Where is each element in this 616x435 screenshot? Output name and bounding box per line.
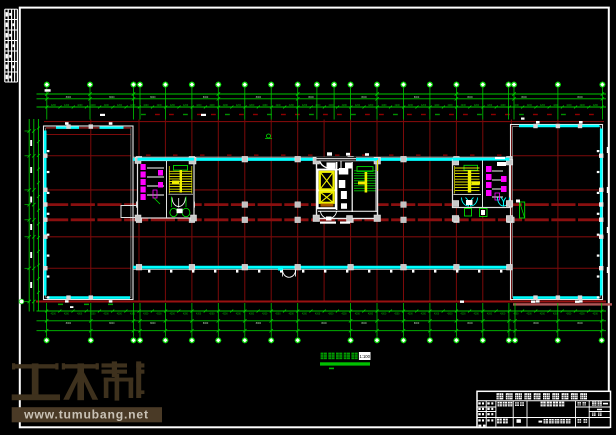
svg-text:4200: 4200 <box>64 313 70 315</box>
svg-text:4200: 4200 <box>593 313 599 315</box>
svg-text:4200: 4200 <box>368 313 374 315</box>
svg-text:4200: 4200 <box>130 313 136 315</box>
svg-text:4200: 4200 <box>580 105 586 107</box>
svg-text:4200: 4200 <box>196 105 202 107</box>
svg-text:4200: 4200 <box>315 105 321 107</box>
svg-text:4200: 4200 <box>368 105 374 107</box>
svg-text:4200: 4200 <box>579 313 585 315</box>
svg-text:4200: 4200 <box>64 105 70 107</box>
svg-text:8000: 8000 <box>308 96 314 99</box>
svg-text:4200: 4200 <box>262 105 268 107</box>
svg-text:4200: 4200 <box>143 313 149 315</box>
svg-text:4200: 4200 <box>566 313 572 315</box>
svg-text:4200: 4200 <box>553 313 559 315</box>
svg-text:4200: 4200 <box>104 105 110 107</box>
svg-text:4200: 4200 <box>302 313 308 315</box>
svg-text:8000: 8000 <box>150 96 156 99</box>
svg-text:4200: 4200 <box>500 313 506 315</box>
svg-text:8000: 8000 <box>321 322 327 325</box>
svg-text:4200: 4200 <box>394 313 400 315</box>
svg-text:4200: 4200 <box>514 105 520 107</box>
svg-text:4200: 4200 <box>104 313 110 315</box>
svg-text:4200: 4200 <box>170 313 176 315</box>
svg-text:4200: 4200 <box>447 105 453 107</box>
svg-text:4200: 4200 <box>355 313 361 315</box>
svg-text:8000: 8000 <box>533 322 539 325</box>
svg-text:4200: 4200 <box>341 313 347 315</box>
svg-text:4200: 4200 <box>408 105 414 107</box>
svg-text:1:100: 1:100 <box>359 354 370 359</box>
svg-text:4200: 4200 <box>156 313 162 315</box>
svg-text:8000: 8000 <box>109 322 115 325</box>
svg-text:4200: 4200 <box>434 313 440 315</box>
svg-text:4200: 4200 <box>487 105 493 107</box>
svg-text:4200: 4200 <box>513 313 519 315</box>
svg-text:4200: 4200 <box>381 105 387 107</box>
svg-text:4200: 4200 <box>500 105 506 107</box>
svg-text:8000: 8000 <box>256 96 262 99</box>
svg-text:8000: 8000 <box>150 322 156 325</box>
svg-text:4200: 4200 <box>130 105 136 107</box>
svg-text:8000: 8000 <box>577 96 583 99</box>
svg-text:8000: 8000 <box>361 322 367 325</box>
svg-text:4200: 4200 <box>236 105 242 107</box>
svg-text:4200: 4200 <box>421 105 427 107</box>
svg-text:4200: 4200 <box>328 313 334 315</box>
svg-text:4200: 4200 <box>302 105 308 107</box>
svg-text:8000: 8000 <box>66 322 72 325</box>
svg-text:8000: 8000 <box>66 96 72 99</box>
svg-text:4200: 4200 <box>342 105 348 107</box>
svg-text:4200: 4200 <box>223 105 229 107</box>
svg-text:4200: 4200 <box>117 313 123 315</box>
svg-text:4200: 4200 <box>395 105 401 107</box>
svg-text:4200: 4200 <box>447 313 453 315</box>
svg-text:4200: 4200 <box>460 313 466 315</box>
svg-text:4200: 4200 <box>77 313 83 315</box>
svg-text:4200: 4200 <box>540 313 546 315</box>
svg-text:4200: 4200 <box>143 105 149 107</box>
svg-text:4200: 4200 <box>275 313 281 315</box>
svg-text:4200: 4200 <box>328 105 334 107</box>
svg-text:4200: 4200 <box>236 313 242 315</box>
svg-text:8000: 8000 <box>361 96 367 99</box>
svg-text:4200: 4200 <box>289 313 295 315</box>
svg-text:4200: 4200 <box>408 313 414 315</box>
svg-text:4200: 4200 <box>474 313 480 315</box>
svg-text:8000: 8000 <box>467 322 473 325</box>
svg-text:8000: 8000 <box>467 96 473 99</box>
svg-text:4200: 4200 <box>527 313 533 315</box>
svg-text:4200: 4200 <box>527 105 533 107</box>
svg-text:4200: 4200 <box>51 313 57 315</box>
svg-text:4200: 4200 <box>90 313 96 315</box>
svg-text:8000: 8000 <box>256 322 262 325</box>
svg-text:4200: 4200 <box>276 105 282 107</box>
svg-text:4200: 4200 <box>421 313 427 315</box>
svg-text:4200: 4200 <box>566 105 572 107</box>
svg-text:8000: 8000 <box>203 322 209 325</box>
svg-text:4200: 4200 <box>117 105 123 107</box>
svg-text:4200: 4200 <box>51 105 57 107</box>
svg-text:8000: 8000 <box>203 96 209 99</box>
svg-text:4200: 4200 <box>289 105 295 107</box>
svg-text:4200: 4200 <box>381 313 387 315</box>
svg-text:4200: 4200 <box>474 105 480 107</box>
svg-text:4200: 4200 <box>77 105 83 107</box>
svg-text:www.tumubang.net: www.tumubang.net <box>23 408 149 422</box>
svg-text:4200: 4200 <box>593 105 599 107</box>
svg-text:8000: 8000 <box>109 96 115 99</box>
svg-text:4200: 4200 <box>540 105 546 107</box>
svg-text:8000: 8000 <box>414 322 420 325</box>
svg-text:4200: 4200 <box>262 313 268 315</box>
svg-text:4200: 4200 <box>209 105 215 107</box>
svg-text:4200: 4200 <box>553 105 559 107</box>
svg-text:4200: 4200 <box>183 105 189 107</box>
svg-text:4200: 4200 <box>209 313 215 315</box>
svg-text:4200: 4200 <box>434 105 440 107</box>
svg-text:8000: 8000 <box>521 96 527 99</box>
svg-text:4200: 4200 <box>355 105 361 107</box>
svg-text:4200: 4200 <box>249 105 255 107</box>
svg-text:4200: 4200 <box>183 313 189 315</box>
svg-text:4200: 4200 <box>249 313 255 315</box>
svg-text:4200: 4200 <box>222 313 228 315</box>
svg-text:8000: 8000 <box>414 96 420 99</box>
svg-text:8000: 8000 <box>577 322 583 325</box>
svg-text:4200: 4200 <box>157 105 163 107</box>
svg-text:4200: 4200 <box>315 313 321 315</box>
svg-text:4200: 4200 <box>170 105 176 107</box>
svg-text:4200: 4200 <box>461 105 467 107</box>
svg-text:4200: 4200 <box>90 105 96 107</box>
svg-text:4200: 4200 <box>196 313 202 315</box>
svg-text:4200: 4200 <box>487 313 493 315</box>
